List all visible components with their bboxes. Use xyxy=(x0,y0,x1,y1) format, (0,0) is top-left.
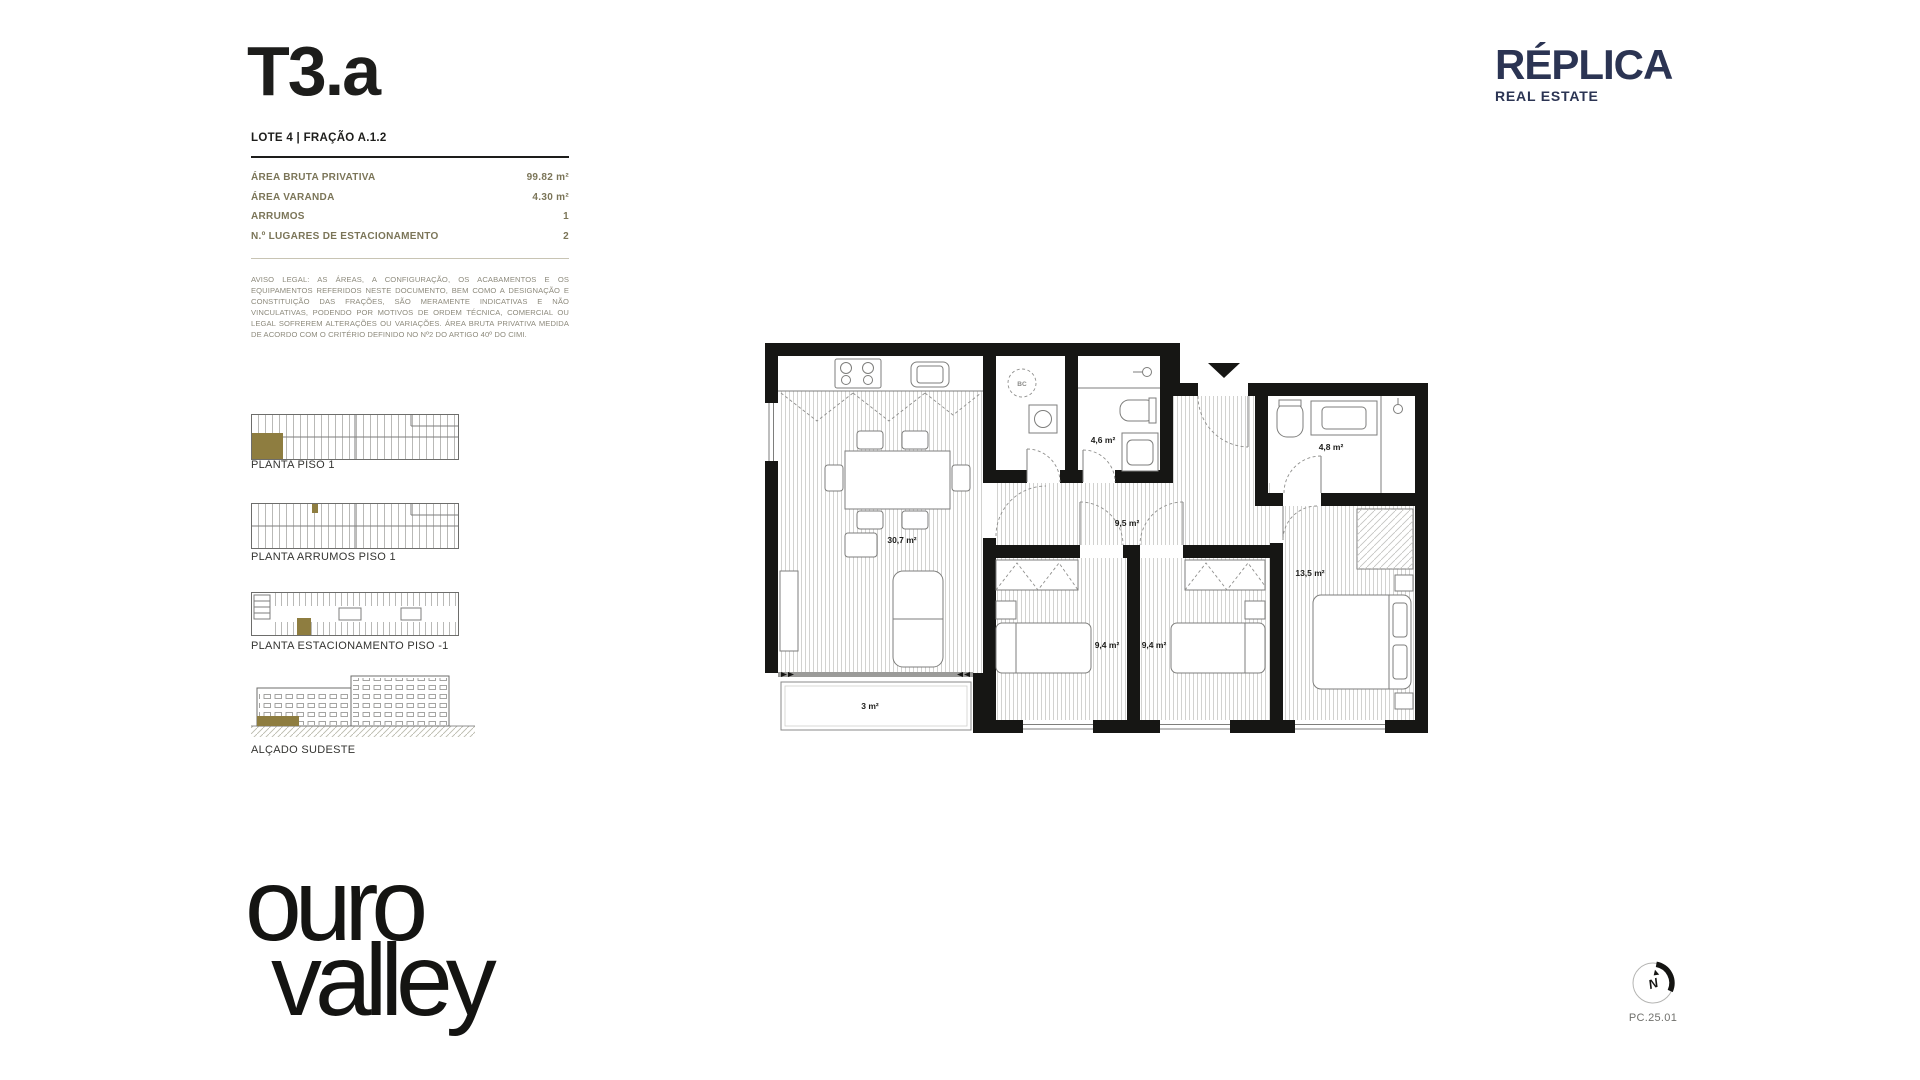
room-label-bath2: 4,8 m² xyxy=(1319,442,1344,452)
toilet-icon xyxy=(1277,403,1303,437)
compass-north-letter: N xyxy=(1646,975,1660,992)
parking-highlight xyxy=(297,618,311,635)
bed-icon xyxy=(996,623,1091,673)
washbasin-counter-icon xyxy=(1311,401,1377,435)
brand-tagline: REAL ESTATE xyxy=(1495,89,1672,103)
wardrobe-icon xyxy=(996,560,1078,590)
divider-top xyxy=(251,156,569,158)
thumbnail-alcado-sudeste xyxy=(251,674,475,738)
washer-icon xyxy=(1029,405,1057,433)
thumbnail-label-estacionamento: PLANTA ESTACIONAMENTO PISO -1 xyxy=(251,640,449,652)
spec-value: 2 xyxy=(563,231,569,242)
room-label-bath1: 4,6 m² xyxy=(1091,435,1116,445)
spec-table: ÁREA BRUTA PRIVATIVA 99.82 m² ÁREA VARAN… xyxy=(251,172,569,250)
room-label-bedroom2: 9,4 m² xyxy=(1142,640,1167,650)
thumbnail-planta-piso1 xyxy=(251,414,459,460)
spec-label: ÁREA BRUTA PRIVATIVA xyxy=(251,172,376,183)
vestibule-area xyxy=(1008,369,1060,482)
unit-highlight xyxy=(252,433,283,459)
spec-value: 1 xyxy=(563,211,569,222)
thumbnail-label-piso1: PLANTA PISO 1 xyxy=(251,459,335,471)
entry-arrow-icon xyxy=(1208,363,1240,378)
north-compass-icon: N xyxy=(1630,960,1676,1006)
spec-row-private-area: ÁREA BRUTA PRIVATIVA 99.82 m² xyxy=(251,172,569,192)
bathroom1-area xyxy=(1078,368,1160,483)
floorplan-sheet: T3.a LOTE 4 | FRAÇÃO A.1.2 ÁREA BRUTA PR… xyxy=(0,0,1920,1080)
page-title: T3.a xyxy=(247,36,379,106)
room-label-hall: 9,5 m² xyxy=(1115,518,1140,528)
heat-pump-label: BC xyxy=(1017,381,1027,388)
room-label-living: 30,7 m² xyxy=(887,535,916,545)
project-logo: ouro valley xyxy=(245,868,490,1019)
spec-row-parking: N.º LUGARES DE ESTACIONAMENTO 2 xyxy=(251,231,569,251)
brand-name: RÉPLICA xyxy=(1495,44,1672,86)
cooktop-icon xyxy=(835,359,881,388)
thumbnail-planta-estacionamento xyxy=(251,592,459,636)
sliding-door xyxy=(778,672,973,677)
spec-value: 4.30 m² xyxy=(532,192,569,203)
spec-label: ARRUMOS xyxy=(251,211,305,222)
spec-row-balcony-area: ÁREA VARANDA 4.30 m² xyxy=(251,192,569,212)
spec-label: N.º LUGARES DE ESTACIONAMENTO xyxy=(251,231,439,242)
thumbnail-label-alcado: ALÇADO SUDESTE xyxy=(251,744,355,756)
floor-plan: 30,7 m² 9,5 m² 4,6 m² 4,8 m² 9,4 m² 9,4 … xyxy=(765,343,1428,740)
shower-head-icon xyxy=(1394,405,1403,414)
spec-value: 99.82 m² xyxy=(527,172,569,183)
armchair-icon xyxy=(845,533,877,557)
legal-disclaimer: AVISO LEGAL: AS ÁREAS, A CONFIGURAÇÃO, O… xyxy=(251,274,569,340)
spec-row-storage: ARRUMOS 1 xyxy=(251,211,569,231)
thumbnail-planta-arrumos xyxy=(251,503,459,549)
divider-specs xyxy=(251,258,569,259)
brand-logo: RÉPLICA REAL ESTATE xyxy=(1495,44,1672,103)
bed-icon xyxy=(1171,623,1265,673)
room-label-bedroom1: 9,4 m² xyxy=(1095,640,1120,650)
sideboard-icon xyxy=(780,571,798,651)
project-logo-line2: valley xyxy=(271,943,490,1018)
lot-fraction-subtitle: LOTE 4 | FRAÇÃO A.1.2 xyxy=(251,132,387,144)
dining-table-icon xyxy=(845,451,950,509)
room-label-bedroom3: 13,5 m² xyxy=(1295,568,1324,578)
spec-label: ÁREA VARANDA xyxy=(251,192,335,203)
room-label-balcony: 3 m² xyxy=(861,701,879,711)
shower-head-icon xyxy=(1143,368,1152,377)
thumbnail-label-arrumos: PLANTA ARRUMOS PISO 1 xyxy=(251,551,396,563)
storage-highlight xyxy=(312,504,318,513)
elevation-highlight xyxy=(257,716,299,726)
sheet-code: PC.25.01 xyxy=(1612,1012,1694,1024)
